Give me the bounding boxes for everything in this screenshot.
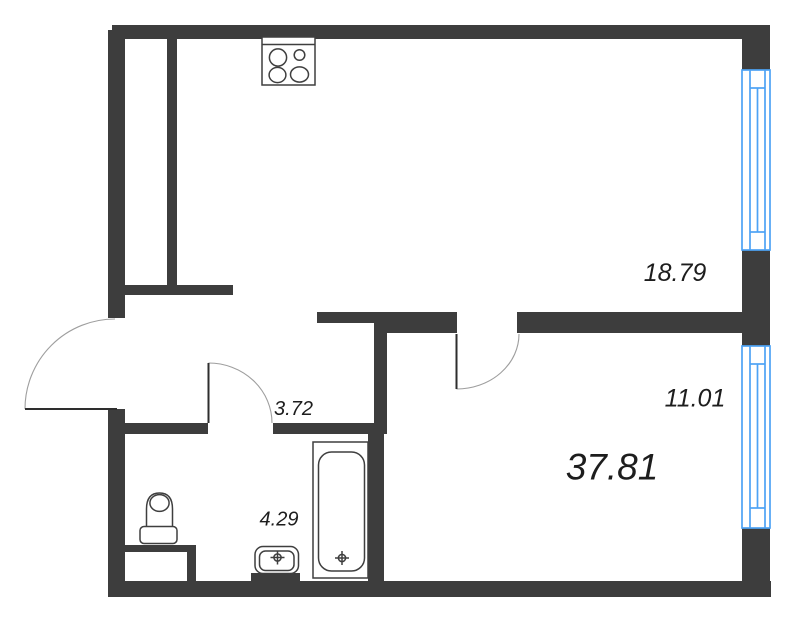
door-swing-icon-bathroom xyxy=(209,363,273,423)
wall-closet-bottom xyxy=(123,285,233,295)
door-arcs xyxy=(25,319,519,423)
area-label-bedroom: 11.01 xyxy=(665,385,726,413)
area-label-total: 37.81 xyxy=(566,447,659,488)
wall-bathroom-top-left xyxy=(123,423,208,434)
toilet-icon xyxy=(140,493,177,544)
wall-right-stub-top xyxy=(742,39,770,70)
wall-bedroom-top-left xyxy=(387,312,457,333)
area-label-hallway: 3.72 xyxy=(274,398,313,420)
area-label-bathroom: 4.29 xyxy=(260,509,299,531)
wall-left-upper xyxy=(108,30,125,318)
wall-hall-bedroom xyxy=(374,312,387,434)
wall-top xyxy=(112,25,770,39)
walls xyxy=(108,25,771,597)
bathtub-icon xyxy=(313,442,368,578)
wall-niche-top xyxy=(123,545,196,552)
floor-plan-drawing: 18.79 11.01 3.72 4.29 37.81 xyxy=(0,0,800,623)
wall-right-stub-middle xyxy=(742,250,770,346)
stove-icon xyxy=(262,37,315,85)
door-swing-icon-bedroom xyxy=(457,334,520,389)
wall-niche-right xyxy=(187,545,196,581)
wall-kitchen-partition xyxy=(167,39,177,295)
floor-plan: 18.79 11.01 3.72 4.29 37.81 xyxy=(0,0,800,623)
door-swing-icon-entry xyxy=(25,319,115,409)
window-icon-top xyxy=(742,70,770,250)
wall-left-lower xyxy=(108,409,125,581)
window-icon-bottom xyxy=(742,346,770,528)
wall-bathroom-bedroom xyxy=(368,423,384,581)
sink-icon xyxy=(255,547,299,574)
wall-right-stub-bottom xyxy=(742,528,770,581)
wall-bedroom-top-right xyxy=(517,312,742,333)
area-label-kitchen-living: 18.79 xyxy=(644,259,707,287)
door-leaves xyxy=(25,334,457,423)
wall-bathroom-top-right xyxy=(273,423,384,434)
wall-bottom xyxy=(108,581,771,597)
